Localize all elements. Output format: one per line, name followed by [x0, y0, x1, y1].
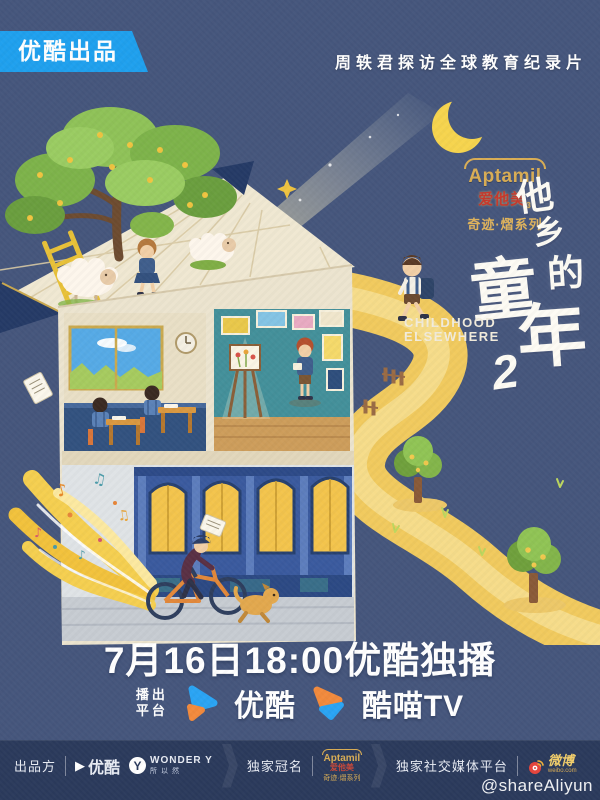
- social-platform-label: 独家社交媒体平台: [396, 756, 508, 775]
- divider-chevron: [222, 744, 238, 788]
- fruit-tree: [393, 436, 447, 512]
- platform-label-line: 平台: [136, 703, 168, 719]
- producer-label: 出品方: [14, 756, 56, 775]
- play-icon: ▶: [75, 758, 85, 774]
- divider: [312, 756, 313, 776]
- title-char: 年: [514, 278, 590, 383]
- divider: [65, 756, 66, 776]
- platform-name-kumiao: 酷喵TV: [362, 681, 464, 725]
- wonder-y-wordmark: WONDER Y: [150, 756, 213, 765]
- aptamil-series-name: 奇迹·熠系列: [322, 774, 362, 783]
- watermark-handle: @shareAliyun: [481, 776, 593, 796]
- youku-play-icon: [181, 683, 221, 723]
- wonder-y-subname: 所以然: [150, 767, 213, 776]
- classroom-scene: [64, 313, 206, 457]
- naming-sponsor-label: 独家冠名: [247, 756, 303, 775]
- flying-paper: [23, 372, 53, 404]
- weibo-logo: 微博 weibo.com: [527, 756, 577, 776]
- platform-name-youku: 优酷: [234, 681, 296, 725]
- title-english-line: CHILDHOOD: [404, 316, 492, 330]
- weibo-wordmark: 微博: [548, 756, 577, 766]
- platform-row: 播出 平台 优酷 酷喵TV: [0, 681, 600, 725]
- weibo-eye-icon: [527, 757, 545, 775]
- platform-label: 播出 平台: [136, 687, 168, 719]
- youku-wordmark: 优酷: [88, 754, 120, 778]
- poster-tagline: 周轶君探访全球教育纪录片: [335, 49, 587, 73]
- wonder-y-logo: Y WONDER Y 所以然: [129, 756, 213, 776]
- wonder-y-icon: Y: [129, 757, 146, 774]
- title-english: CHILDHOOD ELSEWHERE: [404, 316, 492, 344]
- weibo-url: weibo.com: [548, 766, 577, 776]
- kumiao-play-icon: [309, 683, 349, 723]
- aptamil-chinese-name: 爱他美: [322, 763, 362, 772]
- poster: ♪ ♫ ♪ ♫ ♪: [0, 0, 600, 800]
- title-english-line: ELSEWHERE: [404, 330, 492, 344]
- premiere-date: 7月16日18:00优酷独播: [0, 630, 600, 684]
- youku-logo: ▶ 优酷: [75, 754, 120, 778]
- aptamil-wordmark: Aptamil: [322, 754, 362, 763]
- divider: [517, 756, 518, 776]
- moon-icon: [432, 91, 496, 153]
- producer-badge: 优酷出品: [0, 31, 148, 72]
- music-note-icon: ♪: [34, 526, 42, 541]
- aptamil-footer-logo: Aptamil 爱他美 奇迹·熠系列: [322, 749, 362, 783]
- art-gallery-scene: [214, 309, 350, 451]
- music-note-icon: ♪: [78, 548, 86, 562]
- platform-label-line: 播出: [136, 687, 168, 703]
- divider-chevron: [371, 744, 387, 788]
